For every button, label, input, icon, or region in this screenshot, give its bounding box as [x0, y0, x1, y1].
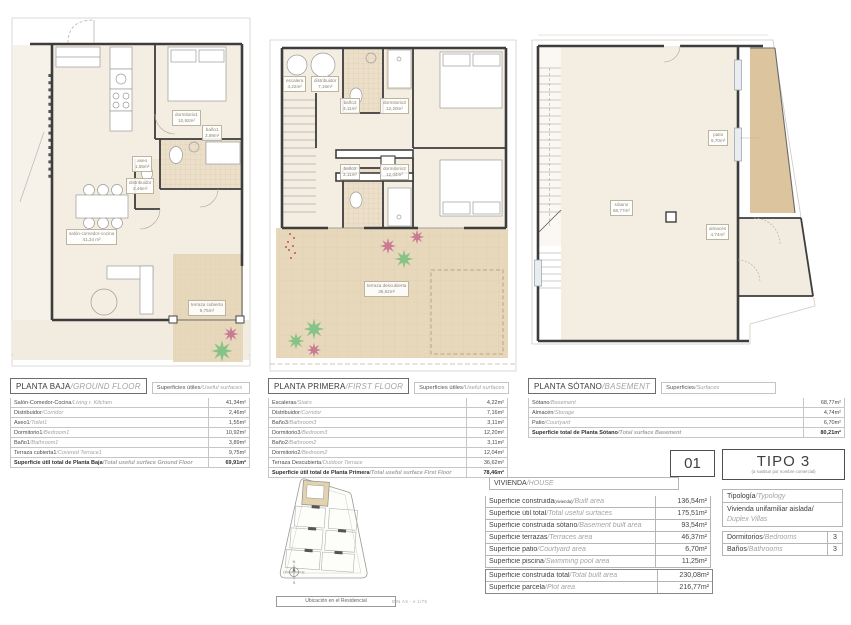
unit-type-box: TIPO 3 (a sustituir por nombre comercial… — [722, 449, 845, 480]
house-table-title: VIVIENDA/HOUSE — [489, 477, 679, 490]
spec-row: Baños/Bathrooms 3 — [722, 544, 843, 556]
house-row: Superficie construida sótano/Basement bu… — [485, 520, 711, 532]
surface-row: Aseo1/Toilet1 1,55m² — [10, 418, 250, 428]
unit-type: TIPO 3 — [757, 455, 811, 469]
surface-row: Dormitorio2/Bedroom2 12,04m² — [268, 448, 508, 458]
surface-row: Baño1/Bathroom1 3,89m² — [10, 438, 250, 448]
room-label: baño33,11m² — [340, 98, 360, 114]
terrace-post — [236, 316, 244, 323]
site-plan: N S E O — [258, 476, 403, 598]
house-total-row: Superficie parcela/Plot area 216,77m² — [486, 582, 712, 593]
house-row: Superficie piscina/Swimming pool area 11… — [485, 556, 711, 568]
house-row: Superficie patio/Courtyard area 6,70m² — [485, 544, 711, 556]
surface-rows: Sótano/Basement 68,77m² Almacén/Storage … — [528, 398, 845, 438]
ground-floor-table: PLANTA BAJA/GROUND FLOOR Superficies úti… — [10, 378, 250, 468]
plan-title: PLANTA PRIMERA/FIRST FLOOR — [268, 378, 409, 394]
highlighted-unit — [302, 481, 330, 507]
house-row: Superficie terrazas/Terraces area 46,37m… — [485, 532, 711, 544]
surface-row: Dormitorio3/Bedroom3 12,20m² — [268, 428, 508, 438]
first-floor-table: PLANTA PRIMERA/FIRST FLOOR Superficies ú… — [268, 378, 508, 478]
room-label: salón-comedor-cocina41,34 m² — [66, 229, 117, 245]
terrace-post — [169, 316, 177, 323]
surfaces-label: Superficies útiles/Useful surfaces — [152, 382, 250, 394]
unit-number-box: 01 — [670, 450, 715, 477]
ground-floor-plan: dormitorio110,92m² baño13,89m² aseo1,55m… — [10, 14, 253, 372]
room-label: distribuidor7,16m² — [311, 76, 339, 92]
svg-text:O: O — [283, 570, 286, 574]
surface-row: Almacén/Storage 4,74m² — [528, 408, 845, 418]
house-total-row: Superficie construida total/Total built … — [486, 570, 712, 582]
surface-row: Baño3/Bathroom3 3,11m² — [268, 418, 508, 428]
room-label: terraza descubierta36,62m² — [364, 281, 409, 297]
plan-sheet: { "plans": [ { "name": "PLANTA BAJA", "n… — [0, 0, 851, 625]
site-plan-drawing: N S E O — [258, 476, 403, 598]
room-label: dormitorio312,20m² — [380, 98, 409, 114]
room-label: terraza cubierta9,75m² — [188, 300, 226, 316]
basement-drawing — [528, 28, 846, 373]
room-label: baño23,11m² — [340, 164, 360, 180]
surfaces-label: Superficies útiles/Useful surfaces — [414, 382, 509, 394]
surface-row: Sótano/Basement 68,77m² — [528, 398, 845, 408]
surface-row: Terraza cubierta1/Covered Terrace1 9,75m… — [10, 448, 250, 458]
room-label: patio6,70m² — [708, 130, 728, 146]
svg-text:E: E — [302, 570, 305, 574]
surface-rows: Escaleras/Stairs 4,22m² Distribuidor/Cor… — [268, 398, 508, 478]
surface-row: Salón-Comedor-Cocina/Living r. Kitchen 4… — [10, 398, 250, 408]
first-floor-plan: escalera4,22m² distribuidor7,16m² baño33… — [268, 38, 518, 376]
room-label: sótano68,77m² — [610, 200, 633, 216]
plan-title: PLANTA SÓTANO/BASEMENT — [528, 378, 656, 394]
scale-note: DIN A3 - e 1/75 — [392, 599, 427, 604]
room-label: almacén4,74m² — [706, 224, 729, 240]
room-label: distribuidor2,46m² — [126, 178, 154, 194]
typology-header: Tipología/Typology — [722, 489, 843, 503]
surface-row: Dormitorio1/Bedroom1 10,92m² — [10, 428, 250, 438]
surface-row: Baño2/Bathroom2 3,11m² — [268, 438, 508, 448]
room-label: escalera4,22m² — [283, 76, 306, 92]
specs-table: Dormitorios/Bedrooms 3 Baños/Bathrooms 3 — [722, 531, 843, 556]
room-label: aseo1,55m² — [132, 156, 152, 172]
surface-row: Escaleras/Stairs 4,22m² — [268, 398, 508, 408]
svg-text:N: N — [293, 560, 296, 564]
room-label: dormitorio110,92m² — [172, 110, 201, 126]
room-label: dormitorio212,04m² — [380, 164, 409, 180]
surface-row: Superficie útil total de Planta Baja/Tot… — [10, 458, 250, 468]
basement-plan: sótano68,77m² patio6,70m² almacén4,74m² — [528, 28, 846, 373]
spec-row: Dormitorios/Bedrooms 3 — [722, 532, 843, 544]
basement-table: PLANTA SÓTANO/BASEMENT Superficies/Surfa… — [528, 378, 845, 438]
house-totals-table: Superficie construida total/Total built … — [485, 569, 713, 594]
typology-panel: Tipología/Typology Vivienda unifamiliar … — [722, 489, 843, 527]
surface-rows: Salón-Comedor-Cocina/Living r. Kitchen 4… — [10, 398, 250, 468]
house-row: Superficie útil total/Total useful surfa… — [485, 508, 711, 520]
surface-row: Superficie total de Planta Sótano/Total … — [528, 428, 845, 438]
svg-text:S: S — [293, 581, 296, 585]
surfaces-label: Superficies/Surfaces — [661, 382, 776, 394]
typology-value: Vivienda unifamiliar aislada/ Duplex Vil… — [722, 503, 843, 527]
column — [666, 212, 676, 222]
plan-title: PLANTA BAJA/GROUND FLOOR — [10, 378, 147, 394]
surface-row: Patio/Courtyard 6,70m² — [528, 418, 845, 428]
surface-row: Distribuidor/Corridor 7,16m² — [268, 408, 508, 418]
house-table: Superficie construida(vivienda)/Built ar… — [485, 496, 711, 568]
house-row: Superficie construida(vivienda)/Built ar… — [485, 496, 711, 508]
entry-canopy — [68, 20, 94, 43]
site-caption: Ubicación en el Residencial — [276, 596, 396, 607]
surface-row: Distribuidor/Corridor 2,46m² — [10, 408, 250, 418]
unit-type-note: (a sustituir por nombre comercial) — [752, 469, 816, 474]
room-label: baño13,89m² — [202, 125, 222, 141]
surface-row: Terraza Descubierta/Outdoor Terrace 36,6… — [268, 458, 508, 468]
